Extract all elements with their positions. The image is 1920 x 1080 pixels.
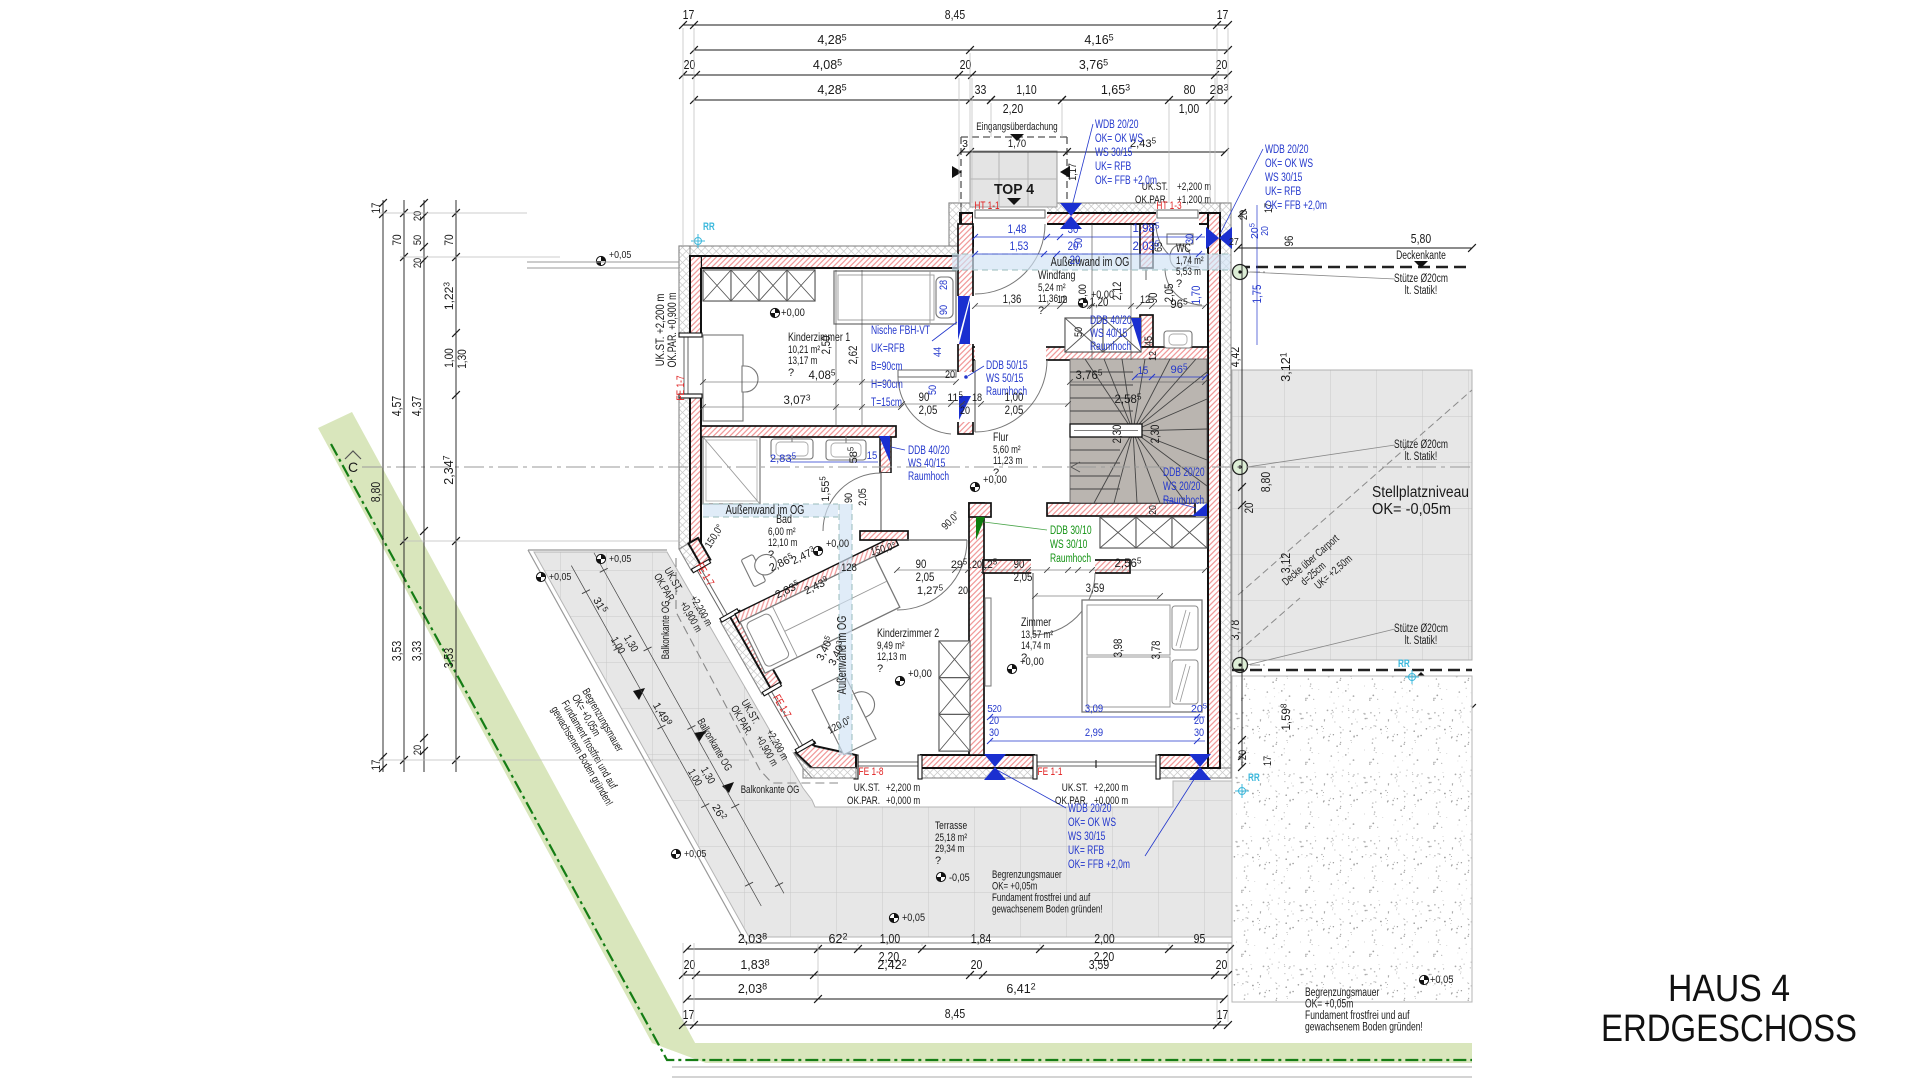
svg-text:50: 50 [412,235,424,245]
svg-text:50: 50 [1073,327,1085,337]
svg-text:2,05: 2,05 [1005,405,1024,417]
svg-text:Stütze Ø20cm: Stütze Ø20cm [1394,623,1448,635]
svg-text:WS 40/15: WS 40/15 [1090,328,1127,340]
svg-text:TOP 4: TOP 4 [994,181,1035,198]
svg-text:DDB 40/20: DDB 40/20 [908,445,950,457]
svg-text:UK= RFB: UK= RFB [1265,186,1301,198]
svg-text:OK.PAR.: OK.PAR. [1055,795,1088,807]
svg-text:OK= FFB +2,0m: OK= FFB +2,0m [1068,859,1130,871]
svg-text:?: ? [1038,305,1044,317]
svg-text:30: 30 [1184,234,1196,244]
svg-text:27: 27 [1229,236,1239,248]
svg-text:12: 12 [1147,351,1159,361]
svg-text:Terrasse: Terrasse [935,820,967,832]
svg-text:1,48: 1,48 [1008,224,1027,236]
svg-text:12,10 m: 12,10 m [768,537,797,549]
svg-text:1,00: 1,00 [880,932,900,946]
svg-text:2,05: 2,05 [857,488,869,506]
svg-text:?: ? [768,549,774,561]
svg-text:2,05: 2,05 [1164,284,1176,303]
svg-text:1,00: 1,00 [1077,284,1089,302]
svg-text:20: 20 [1070,255,1081,267]
svg-text:1,36: 1,36 [1003,294,1022,306]
svg-text:20: 20 [960,405,970,417]
svg-text:12,13 m: 12,13 m [877,651,906,663]
svg-text:+0,00: +0,00 [1091,289,1114,301]
svg-text:8,45: 8,45 [945,8,965,22]
svg-text:17: 17 [1217,8,1229,22]
svg-text:UK.ST. +2,200 m: UK.ST. +2,200 m [655,294,667,367]
svg-text:Balkonkante OG: Balkonkante OG [660,601,672,660]
svg-text:8,45: 8,45 [945,1007,965,1021]
svg-text:?: ? [935,855,941,867]
svg-text:Fundament frostfrei und auf: Fundament frostfrei und auf [992,892,1091,904]
svg-text:OK.PAR.: OK.PAR. [847,795,880,807]
svg-text:20: 20 [958,585,968,597]
svg-text:Raumhoch: Raumhoch [1090,341,1131,353]
svg-text:4,57: 4,57 [390,396,404,416]
svg-text:33: 33 [975,83,987,97]
svg-text:1,53: 1,53 [1010,241,1029,253]
svg-text:WDB 20/20: WDB 20/20 [1095,119,1139,131]
svg-text:OK= +0,05m: OK= +0,05m [992,881,1037,893]
svg-text:5,80: 5,80 [1411,232,1431,246]
svg-text:3,09: 3,09 [1085,703,1103,715]
svg-text:29,34 m: 29,34 m [935,843,964,855]
svg-text:15: 15 [867,450,878,462]
svg-text:Nische FBH-VT: Nische FBH-VT [871,325,930,337]
svg-text:20: 20 [1238,210,1250,220]
svg-text:30: 30 [989,727,999,739]
svg-text:80: 80 [1184,83,1196,97]
svg-text:96: 96 [1284,236,1296,247]
svg-text:18: 18 [972,392,982,404]
svg-text:Kinderzimmer 1: Kinderzimmer 1 [788,330,850,344]
svg-text:1,30: 1,30 [455,349,469,369]
svg-text:128: 128 [841,562,857,574]
svg-text:5,53 m: 5,53 m [1176,266,1201,278]
svg-text:20: 20 [1237,750,1249,760]
svg-text:Flur: Flur [993,430,1008,444]
svg-text:+2,200 m: +2,200 m [1177,181,1211,193]
svg-text:lt. Statik!: lt. Statik! [1405,451,1438,463]
svg-text:HT 1-1: HT 1-1 [974,200,999,212]
svg-text:1,00: 1,00 [1005,392,1024,404]
svg-text:3,33: 3,33 [410,641,424,661]
svg-text:3,53: 3,53 [390,641,404,661]
svg-text:WS 30/15: WS 30/15 [1265,172,1302,184]
svg-text:3,98: 3,98 [1113,639,1125,658]
svg-text:20: 20 [412,745,424,755]
svg-text:2,00: 2,00 [1094,932,1114,946]
svg-text:+0,05: +0,05 [902,912,925,924]
svg-text:2,05: 2,05 [1014,572,1033,584]
svg-text:Kinderzimmer 2: Kinderzimmer 2 [877,626,939,640]
svg-text:gewachsenem Boden gründen!: gewachsenem Boden gründen! [1305,1022,1423,1034]
svg-text:17: 17 [683,1008,695,1022]
svg-text:90: 90 [938,305,950,315]
svg-text:3,59: 3,59 [1089,958,1109,972]
svg-text:13,17 m: 13,17 m [788,355,817,367]
svg-text:90: 90 [1148,293,1160,304]
svg-text:90: 90 [1014,559,1025,571]
svg-text:17: 17 [683,8,695,22]
svg-text:70: 70 [442,234,456,245]
svg-text:3,59: 3,59 [1086,583,1105,595]
svg-text:Außenwand im OG: Außenwand im OG [726,503,805,517]
svg-text:17: 17 [371,203,383,214]
svg-text:+0,00: +0,00 [826,538,849,550]
svg-text:2,50: 2,50 [821,336,833,355]
svg-text:RR: RR [703,221,715,233]
svg-text:?: ? [1176,278,1182,290]
svg-text:+0,05: +0,05 [684,848,706,860]
svg-text:8,80: 8,80 [369,482,383,502]
svg-text:FE 1-1: FE 1-1 [1038,766,1063,778]
svg-text:Windfang: Windfang [1038,268,1076,282]
svg-text:Stütze Ø20cm: Stütze Ø20cm [1394,439,1448,451]
svg-text:Begrenzungsmauer: Begrenzungsmauer [992,869,1062,881]
svg-text:Außenwand im OG: Außenwand im OG [1051,255,1130,269]
svg-text:OK= FFB +2,0m: OK= FFB +2,0m [1095,175,1157,187]
svg-text:?: ? [788,367,794,379]
svg-text:2,30: 2,30 [1150,425,1162,444]
svg-text:OK= OK WS: OK= OK WS [1068,817,1116,829]
svg-text:28: 28 [938,280,950,290]
svg-text:1,70: 1,70 [1008,138,1026,150]
svg-text:+0,05: +0,05 [609,553,631,565]
svg-text:+2,200 m: +2,200 m [1094,782,1128,794]
svg-text:+2,200 m: +2,200 m [886,782,920,794]
svg-text:44: 44 [932,347,944,357]
svg-text:RR: RR [1248,772,1260,784]
svg-text:14,74 m: 14,74 m [1021,640,1050,652]
svg-text:DDB 20/20: DDB 20/20 [1163,467,1205,479]
svg-text:ERDGESCHOSS: ERDGESCHOSS [1601,1008,1857,1050]
svg-text:3: 3 [962,138,968,150]
svg-text:Deckenkante: Deckenkante [1396,250,1446,262]
svg-text:FE 1-7: FE 1-7 [675,376,687,401]
svg-text:C: C [348,459,358,475]
svg-text:WS 40/15: WS 40/15 [908,458,945,470]
svg-text:8,80: 8,80 [1259,472,1273,492]
svg-text:2,05: 2,05 [919,405,938,417]
svg-text:WS 50/15: WS 50/15 [986,373,1023,385]
svg-text:WDB 20/20: WDB 20/20 [1265,144,1309,156]
svg-text:+0,05: +0,05 [549,571,571,583]
svg-text:1,75: 1,75 [1252,285,1264,304]
svg-text:20: 20 [412,258,424,268]
svg-text:?: ? [877,663,883,675]
svg-text:gewachsenem Boden gründen!: gewachsenem Boden gründen! [992,904,1103,916]
svg-text:WS 30/15: WS 30/15 [1068,831,1105,843]
svg-text:17: 17 [371,760,383,771]
svg-text:UK=RFB: UK=RFB [871,343,905,355]
svg-text:90: 90 [843,493,855,503]
svg-text:20: 20 [684,58,696,72]
svg-text:OK= OK WS: OK= OK WS [1095,133,1143,145]
svg-text:50: 50 [1073,238,1085,248]
svg-text:+1,200 m: +1,200 m [1177,194,1211,206]
svg-text:DDB 40/20: DDB 40/20 [1090,315,1132,327]
svg-text:DDB 50/15: DDB 50/15 [986,360,1028,372]
svg-text:17: 17 [1217,1008,1229,1022]
svg-text:20: 20 [412,211,424,221]
svg-text:2,12: 2,12 [1112,282,1124,301]
svg-text:Raumhoch: Raumhoch [908,471,949,483]
svg-text:2,30: 2,30 [1112,425,1124,444]
svg-text:15: 15 [1138,365,1149,377]
svg-text:HAUS 4: HAUS 4 [1668,968,1790,1010]
svg-text:+0,00: +0,00 [781,307,805,319]
svg-text:UK= RFB: UK= RFB [1068,845,1104,857]
svg-text:30: 30 [1194,727,1204,739]
svg-text:1,00: 1,00 [1179,102,1199,116]
svg-text:70: 70 [390,234,404,245]
svg-text:DDB 30/10: DDB 30/10 [1050,525,1092,537]
svg-text:1,84: 1,84 [971,932,991,946]
svg-text:90: 90 [919,392,930,404]
svg-text:Balkonkante OG: Balkonkante OG [741,784,800,796]
svg-text:95: 95 [1194,932,1206,946]
svg-text:-0,05: -0,05 [949,872,970,884]
svg-text:OK= +0,05m: OK= +0,05m [1305,999,1353,1011]
svg-text:20: 20 [971,958,983,972]
svg-text:1,00: 1,00 [442,348,456,368]
svg-text:UK.ST.: UK.ST. [854,782,880,794]
svg-text:+0,05: +0,05 [609,249,631,261]
svg-text:20: 20 [945,369,955,381]
svg-text:17: 17 [1262,756,1274,766]
svg-text:H=90cm: H=90cm [871,379,903,391]
svg-text:20: 20 [1194,715,1204,727]
svg-text:+0,00: +0,00 [908,668,932,680]
svg-text:2,99: 2,99 [1085,727,1103,739]
svg-text:OK= OK WS: OK= OK WS [1265,158,1313,170]
svg-text:UK.ST.: UK.ST. [1062,782,1088,794]
svg-text:WS 30/15: WS 30/15 [1095,147,1132,159]
svg-text:1,10: 1,10 [1016,83,1036,97]
svg-text:20: 20 [1259,226,1271,236]
svg-text:lt. Statik!: lt. Statik! [1405,285,1438,297]
svg-text:Raumhoch: Raumhoch [1050,553,1091,565]
svg-text:2,20: 2,20 [1003,102,1023,116]
svg-text:Zimmer: Zimmer [1021,615,1051,629]
svg-text:WS 30/10: WS 30/10 [1050,539,1087,551]
svg-text:+0,00: +0,00 [1020,656,1044,668]
svg-text:20: 20 [1244,503,1256,514]
svg-text:Eingangsüberdachung: Eingangsüberdachung [976,121,1057,133]
svg-text:20: 20 [1216,58,1228,72]
svg-text:+0,000 m: +0,000 m [1094,795,1128,807]
svg-text:FE 1-8: FE 1-8 [859,766,884,778]
svg-text:OK.PAR. +0,900 m: OK.PAR. +0,900 m [667,293,679,368]
svg-text:Fundament frostfrei und auf: Fundament frostfrei und auf [1305,1010,1410,1022]
svg-text:20: 20 [992,704,1002,715]
svg-text:3,53: 3,53 [442,648,456,668]
svg-text:20: 20 [1216,958,1228,972]
svg-text:Bad: Bad [776,512,792,526]
svg-text:2,62: 2,62 [848,346,860,365]
svg-text:UK= RFB: UK= RFB [1095,161,1131,173]
svg-text:4,37: 4,37 [410,396,424,416]
svg-text:+0,05: +0,05 [1430,974,1453,986]
svg-text:B=90cm: B=90cm [871,361,903,373]
svg-text:3,12: 3,12 [1279,553,1293,573]
svg-text:1,70: 1,70 [1191,286,1203,305]
svg-text:Begrenzungsmauer: Begrenzungsmauer [1305,987,1379,999]
svg-text:Stütze Ø20cm: Stütze Ø20cm [1394,273,1448,285]
svg-text:20: 20 [960,58,972,72]
svg-text:20: 20 [1147,505,1159,515]
svg-text:lt. Statik!: lt. Statik! [1405,635,1438,647]
svg-text:2,05: 2,05 [916,572,935,584]
svg-text:11,23 m: 11,23 m [993,455,1022,467]
svg-text:+0,00: +0,00 [983,474,1007,486]
svg-text:45: 45 [1143,336,1155,346]
svg-text:20: 20 [684,958,696,972]
svg-text:OK= -0,05m: OK= -0,05m [1372,501,1451,518]
svg-text:+0,000 m: +0,000 m [886,795,920,807]
svg-text:3,78: 3,78 [1151,641,1163,660]
svg-text:Stellplatzniveau: Stellplatzniveau [1372,484,1469,501]
svg-text:RR: RR [1398,658,1410,670]
svg-text:OK= FFB +2,0m: OK= FFB +2,0m [1265,200,1327,212]
svg-text:90: 90 [916,559,927,571]
svg-text:WS 20/20: WS 20/20 [1163,481,1200,493]
svg-text:20: 20 [989,715,999,727]
